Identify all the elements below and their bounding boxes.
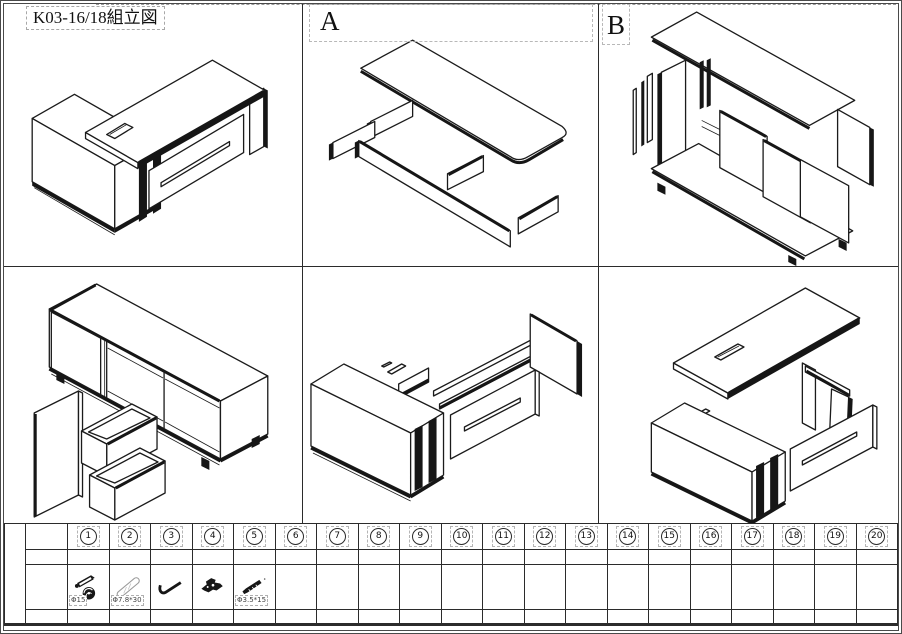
label-box-a: A bbox=[309, 4, 593, 42]
empty-cell bbox=[193, 550, 234, 564]
circled-number: 19 bbox=[827, 528, 844, 545]
desk-return-assembly-drawing bbox=[303, 267, 598, 523]
number-dashed-box: 15 bbox=[658, 526, 681, 547]
empty-cell bbox=[68, 610, 109, 623]
empty-cell bbox=[442, 550, 483, 564]
empty-cell bbox=[483, 550, 524, 564]
circled-number: 5 bbox=[246, 528, 263, 545]
empty-cell bbox=[566, 550, 607, 564]
assembled-desk-drawing bbox=[4, 4, 302, 266]
allen-key-icon bbox=[155, 572, 187, 602]
part-column-header-3: 3 bbox=[151, 524, 192, 549]
number-dashed-box: 1 bbox=[77, 526, 100, 547]
part-cell-4 bbox=[193, 565, 234, 609]
circled-number: 18 bbox=[785, 528, 802, 545]
part-column-header-14: 14 bbox=[608, 524, 649, 549]
empty-cell bbox=[732, 610, 773, 623]
part-column-header-2: 2 bbox=[110, 524, 151, 549]
part-column-header-4: 4 bbox=[193, 524, 234, 549]
parts-table: 1 Φ152 Φ7.8*303 4 5 Φ3.5*156789101112131… bbox=[4, 523, 898, 626]
empty-cell bbox=[691, 550, 732, 564]
circled-number: 14 bbox=[619, 528, 636, 545]
part-column-header-10: 10 bbox=[442, 524, 483, 549]
circled-number: 10 bbox=[453, 528, 470, 545]
part-cell-8 bbox=[359, 565, 400, 609]
exploded-cabinet-b-drawing bbox=[599, 4, 898, 266]
drawing-panel-grid: K03-16/18組立図 bbox=[4, 4, 898, 523]
number-dashed-box: 5 bbox=[243, 526, 266, 547]
panel-credenza-drawers bbox=[4, 267, 303, 523]
panel-desktop-placement bbox=[599, 267, 898, 523]
table-spacer-cell bbox=[26, 565, 67, 609]
credenza-drawers-drawing bbox=[4, 267, 302, 523]
panel-b-label: B bbox=[607, 10, 625, 40]
part-column-header-17: 17 bbox=[732, 524, 773, 549]
part-cell-9 bbox=[400, 565, 441, 609]
part-size-label: Φ15 bbox=[69, 595, 87, 606]
label-box-b: B bbox=[602, 4, 630, 45]
number-dashed-box: 11 bbox=[492, 526, 515, 547]
part-cell-7 bbox=[317, 565, 358, 609]
number-dashed-box: 13 bbox=[575, 526, 598, 547]
table-left-margin-cell bbox=[5, 524, 25, 623]
table-spacer-cell bbox=[26, 610, 67, 623]
circled-number: 4 bbox=[204, 528, 221, 545]
circled-number: 16 bbox=[702, 528, 719, 545]
number-dashed-box: 3 bbox=[160, 526, 183, 547]
empty-cell bbox=[317, 610, 358, 623]
part-size-label: Φ7.8*30 bbox=[111, 595, 144, 606]
empty-cell bbox=[359, 610, 400, 623]
part-column-header-18: 18 bbox=[774, 524, 815, 549]
circled-number: 2 bbox=[121, 528, 138, 545]
empty-cell bbox=[234, 610, 275, 623]
part-column-header-6: 6 bbox=[276, 524, 317, 549]
assembly-sheet: K03-16/18組立図 bbox=[0, 0, 902, 634]
part-cell-12 bbox=[525, 565, 566, 609]
part-column-header-11: 11 bbox=[483, 524, 524, 549]
panel-exploded-desktop-a: A bbox=[303, 4, 599, 267]
part-column-header-7: 7 bbox=[317, 524, 358, 549]
empty-cell bbox=[608, 550, 649, 564]
part-cell-2: Φ7.8*30 bbox=[110, 565, 151, 609]
empty-cell bbox=[608, 610, 649, 623]
panel-return-assembly bbox=[303, 267, 599, 523]
empty-cell bbox=[774, 610, 815, 623]
number-dashed-box: 20 bbox=[865, 526, 888, 547]
empty-cell bbox=[774, 550, 815, 564]
part-column-header-8: 8 bbox=[359, 524, 400, 549]
part-column-header-19: 19 bbox=[815, 524, 856, 549]
part-cell-13 bbox=[566, 565, 607, 609]
empty-cell bbox=[691, 610, 732, 623]
circled-number: 1 bbox=[80, 528, 97, 545]
empty-cell bbox=[815, 610, 856, 623]
panel-assembled-desk: K03-16/18組立図 bbox=[4, 4, 303, 267]
number-dashed-box: 6 bbox=[284, 526, 307, 547]
number-dashed-box: 10 bbox=[450, 526, 473, 547]
empty-cell bbox=[525, 550, 566, 564]
number-dashed-box: 8 bbox=[367, 526, 390, 547]
empty-cell bbox=[815, 550, 856, 564]
empty-cell bbox=[110, 610, 151, 623]
part-cell-10 bbox=[442, 565, 483, 609]
sheet-title: K03-16/18組立図 bbox=[26, 6, 165, 30]
empty-cell bbox=[151, 550, 192, 564]
empty-cell bbox=[649, 610, 690, 623]
part-column-header-20: 20 bbox=[857, 524, 898, 549]
empty-cell bbox=[110, 550, 151, 564]
part-column-header-5: 5 bbox=[234, 524, 275, 549]
circled-number: 9 bbox=[412, 528, 429, 545]
empty-cell bbox=[234, 550, 275, 564]
circled-number: 12 bbox=[536, 528, 553, 545]
circled-number: 11 bbox=[495, 528, 512, 545]
table-spacer-cell bbox=[26, 524, 67, 549]
part-cell-5: Φ3.5*15 bbox=[234, 565, 275, 609]
empty-cell bbox=[442, 610, 483, 623]
part-column-header-9: 9 bbox=[400, 524, 441, 549]
empty-cell bbox=[649, 550, 690, 564]
part-cell-17 bbox=[732, 565, 773, 609]
panel-exploded-cabinet-b: B bbox=[599, 4, 898, 267]
part-cell-14 bbox=[608, 565, 649, 609]
empty-cell bbox=[483, 610, 524, 623]
empty-cell bbox=[857, 550, 898, 564]
part-column-header-15: 15 bbox=[649, 524, 690, 549]
number-dashed-box: 12 bbox=[533, 526, 556, 547]
number-dashed-box: 19 bbox=[824, 526, 847, 547]
part-cell-20 bbox=[857, 565, 898, 609]
number-dashed-box: 4 bbox=[201, 526, 224, 547]
empty-cell bbox=[276, 610, 317, 623]
empty-cell bbox=[400, 550, 441, 564]
empty-cell bbox=[857, 610, 898, 623]
number-dashed-box: 18 bbox=[782, 526, 805, 547]
desktop-placement-drawing bbox=[599, 267, 898, 523]
empty-cell bbox=[317, 550, 358, 564]
number-dashed-box: 17 bbox=[741, 526, 764, 547]
empty-cell bbox=[525, 610, 566, 623]
circled-number: 3 bbox=[163, 528, 180, 545]
panel-a-label: A bbox=[320, 6, 340, 37]
empty-cell bbox=[566, 610, 607, 623]
number-dashed-box: 7 bbox=[326, 526, 349, 547]
empty-cell bbox=[732, 550, 773, 564]
number-dashed-box: 9 bbox=[409, 526, 432, 547]
part-cell-11 bbox=[483, 565, 524, 609]
part-column-header-16: 16 bbox=[691, 524, 732, 549]
cam-connector-icon bbox=[197, 572, 229, 602]
part-column-header-1: 1 bbox=[68, 524, 109, 549]
empty-cell bbox=[359, 550, 400, 564]
part-cell-6 bbox=[276, 565, 317, 609]
part-cell-3 bbox=[151, 565, 192, 609]
table-spacer-cell bbox=[26, 550, 67, 564]
part-cell-18 bbox=[774, 565, 815, 609]
exploded-desktop-a-drawing bbox=[303, 4, 598, 266]
empty-cell bbox=[68, 550, 109, 564]
part-size-label: Φ3.5*15 bbox=[235, 595, 268, 606]
circled-number: 8 bbox=[370, 528, 387, 545]
circled-number: 20 bbox=[868, 528, 885, 545]
circled-number: 15 bbox=[661, 528, 678, 545]
part-cell-16 bbox=[691, 565, 732, 609]
part-column-header-12: 12 bbox=[525, 524, 566, 549]
circled-number: 17 bbox=[744, 528, 761, 545]
circled-number: 7 bbox=[329, 528, 346, 545]
empty-cell bbox=[400, 610, 441, 623]
empty-cell bbox=[193, 610, 234, 623]
circled-number: 6 bbox=[287, 528, 304, 545]
part-column-header-13: 13 bbox=[566, 524, 607, 549]
number-dashed-box: 16 bbox=[699, 526, 722, 547]
number-dashed-box: 14 bbox=[616, 526, 639, 547]
part-cell-1: Φ15 bbox=[68, 565, 109, 609]
number-dashed-box: 2 bbox=[118, 526, 141, 547]
empty-cell bbox=[151, 610, 192, 623]
part-cell-19 bbox=[815, 565, 856, 609]
circled-number: 13 bbox=[578, 528, 595, 545]
empty-cell bbox=[276, 550, 317, 564]
part-cell-15 bbox=[649, 565, 690, 609]
sheet-inner-border: K03-16/18組立図 bbox=[3, 3, 899, 631]
